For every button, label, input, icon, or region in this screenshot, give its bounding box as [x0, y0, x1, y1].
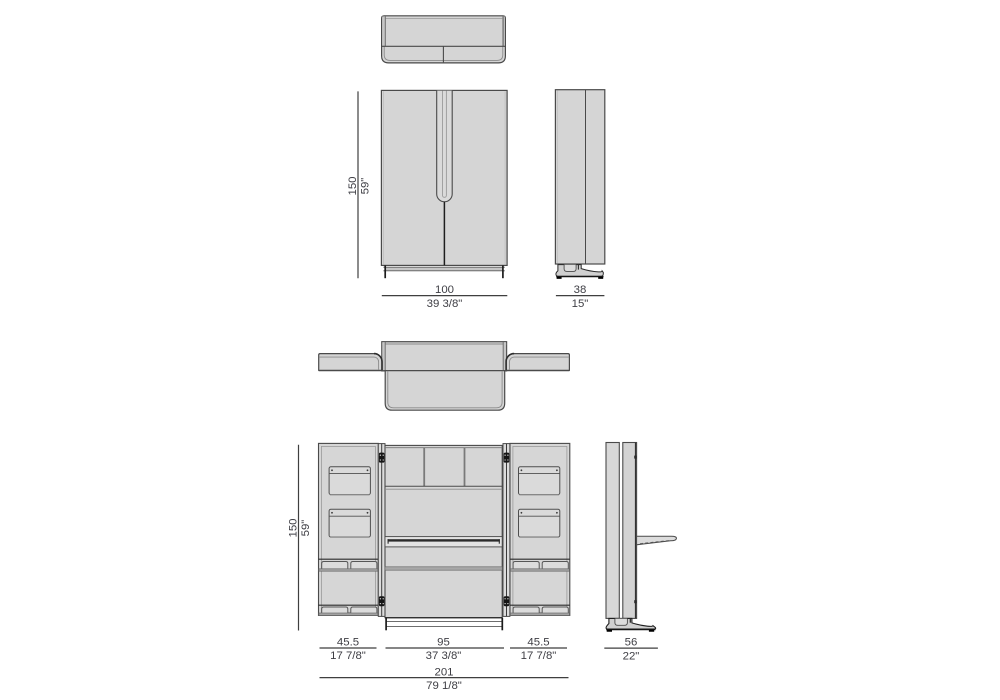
svg-text:39 3/8": 39 3/8" [427, 298, 463, 310]
svg-text:45.5: 45.5 [527, 637, 549, 649]
svg-text:17 7/8": 17 7/8" [330, 650, 366, 662]
svg-text:56: 56 [625, 637, 638, 649]
svg-text:150: 150 [288, 518, 300, 537]
svg-text:150: 150 [347, 176, 359, 195]
svg-text:59": 59" [359, 178, 371, 195]
svg-text:38: 38 [574, 284, 587, 296]
svg-text:100: 100 [435, 284, 454, 296]
svg-text:95: 95 [437, 637, 450, 649]
svg-text:15": 15" [572, 298, 589, 310]
svg-text:201: 201 [434, 666, 453, 678]
svg-text:79 1/8": 79 1/8" [426, 680, 462, 692]
svg-text:22": 22" [623, 650, 640, 662]
svg-text:17 7/8": 17 7/8" [521, 650, 557, 662]
svg-text:59": 59" [300, 520, 312, 537]
svg-text:45.5: 45.5 [337, 637, 359, 649]
svg-text:37 3/8": 37 3/8" [426, 650, 462, 662]
